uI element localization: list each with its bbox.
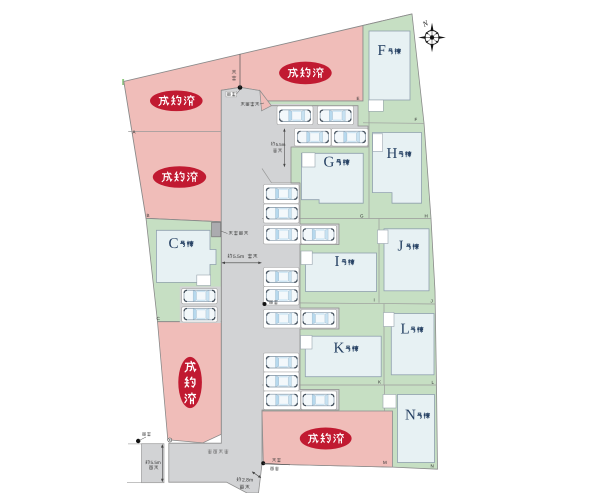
svg-text:G: G — [324, 155, 335, 171]
svg-text:5.5m: 5.5m — [151, 460, 161, 465]
svg-text:J: J — [398, 239, 404, 255]
svg-text:F: F — [415, 117, 418, 122]
svg-text:J: J — [431, 299, 433, 304]
svg-text:I: I — [335, 254, 340, 270]
svg-text:N: N — [405, 408, 416, 424]
svg-text:5.5m: 5.5m — [276, 142, 286, 147]
svg-text:K: K — [334, 341, 345, 357]
svg-text:H: H — [387, 146, 398, 162]
svg-text:5.5m: 5.5m — [233, 254, 244, 260]
svg-text:K: K — [378, 380, 381, 385]
svg-text:B: B — [147, 213, 150, 218]
svg-text:A: A — [133, 130, 136, 135]
svg-text:2.8m: 2.8m — [242, 478, 253, 484]
svg-text:H: H — [425, 213, 428, 218]
svg-text:C: C — [169, 236, 179, 252]
svg-text:F: F — [378, 43, 386, 59]
svg-text:E: E — [357, 96, 360, 101]
svg-text:G: G — [360, 213, 364, 218]
svg-text:I: I — [374, 298, 375, 303]
svg-text:L: L — [401, 322, 410, 338]
svg-text:M: M — [383, 460, 387, 465]
svg-text:N: N — [431, 463, 434, 468]
